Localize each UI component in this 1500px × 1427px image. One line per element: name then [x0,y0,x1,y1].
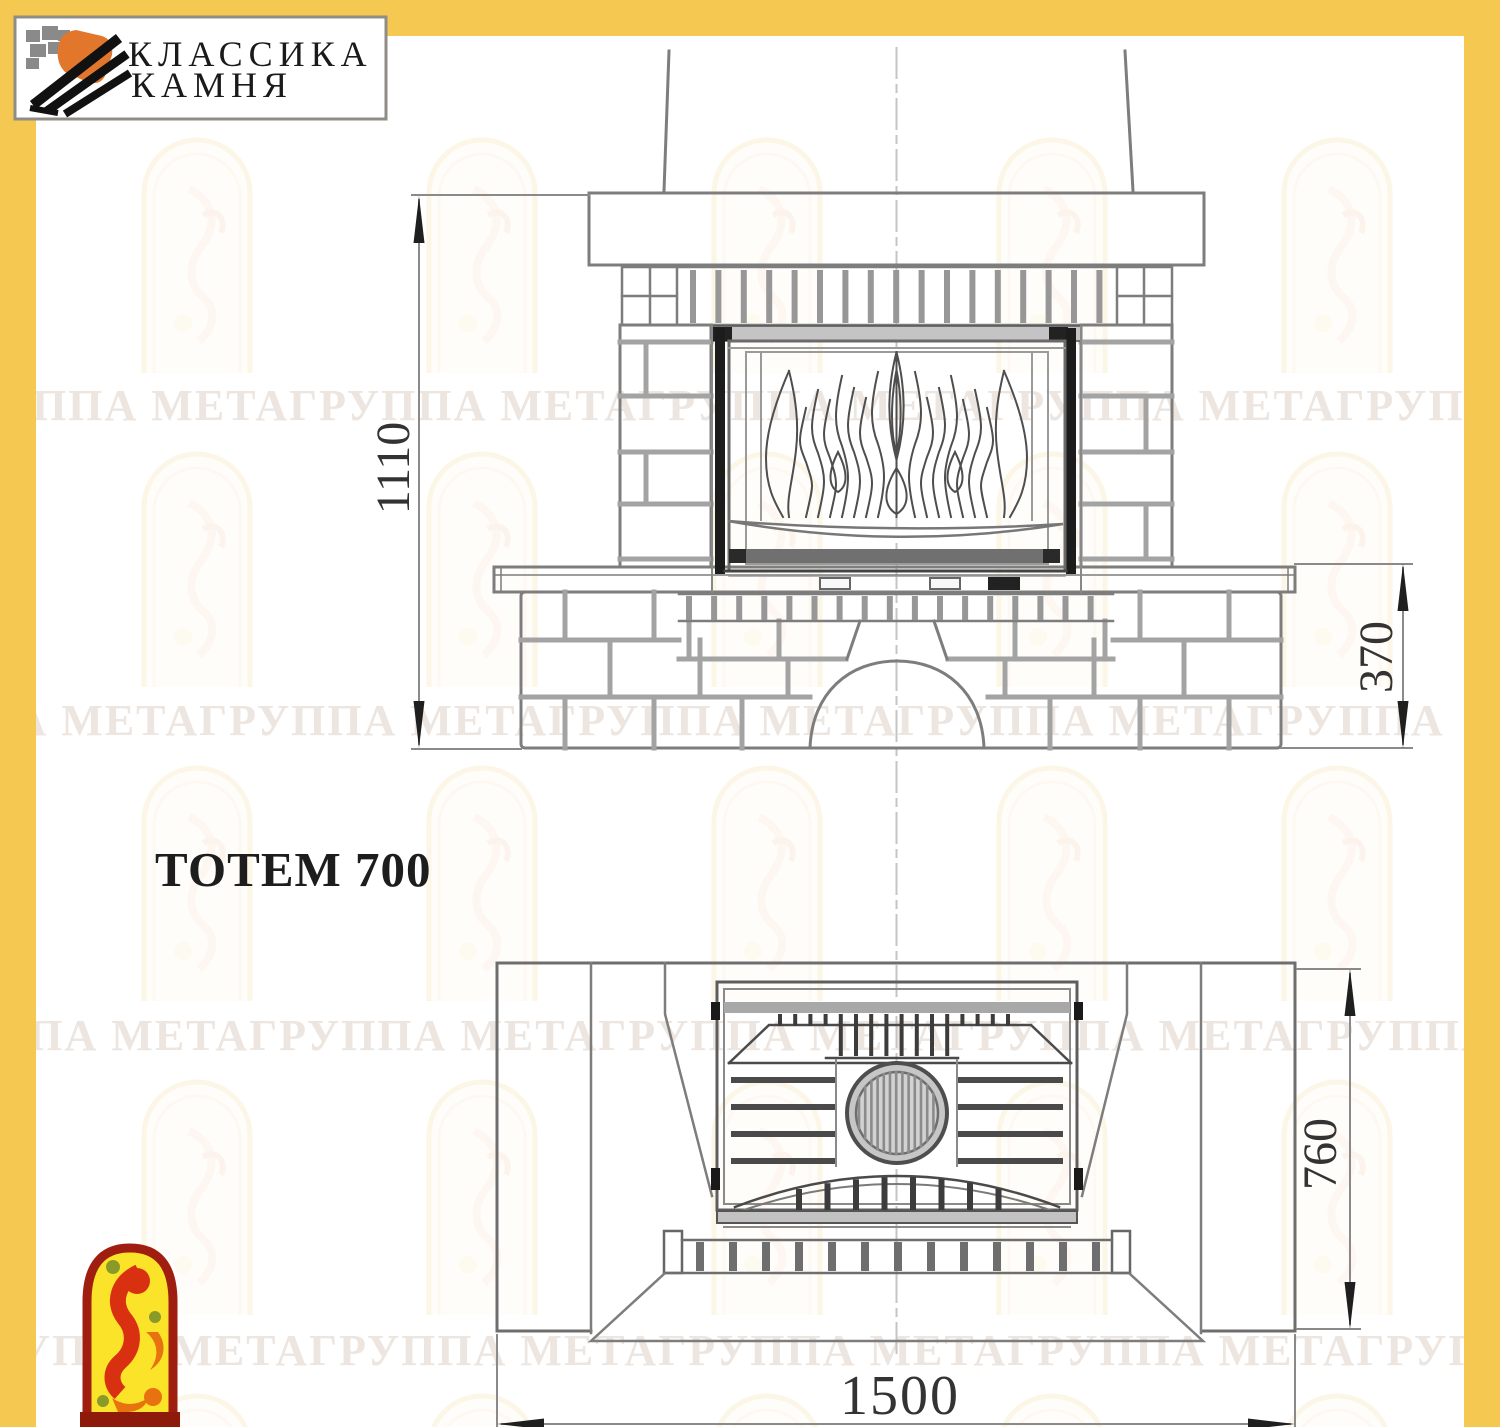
svg-text:ГРУППА МЕТАГРУППА МЕТАГРУППА М: ГРУППА МЕТАГРУППА МЕТАГРУППА МЕТАГРУППА … [0,381,1500,430]
svg-text:370: 370 [1350,621,1403,693]
svg-text:ГРУППА МЕТАГРУППА МЕТАГРУППА М: ГРУППА МЕТАГРУППА МЕТАГРУППА МЕТАГРУППА … [0,1011,1495,1060]
svg-text:1110: 1110 [367,422,420,514]
svg-text:ТОТЕМ 700: ТОТЕМ 700 [155,842,432,897]
svg-text:КАМНЯ: КАМНЯ [131,65,293,105]
svg-text:1500: 1500 [840,1365,960,1427]
svg-text:ГРУППА МЕТАГРУППА МЕТАГРУППА М: ГРУППА МЕТАГРУППА МЕТАГРУППА МЕТАГРУППА … [0,1326,1500,1375]
svg-text:760: 760 [1294,1118,1347,1190]
